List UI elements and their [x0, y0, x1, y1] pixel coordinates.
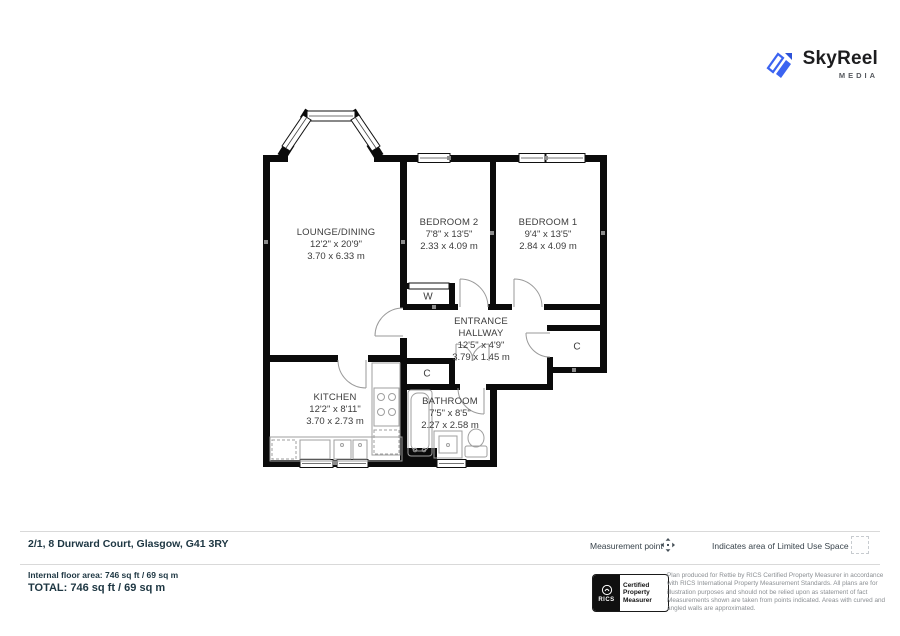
room-name: KITCHEN — [306, 392, 364, 404]
divider-top — [20, 531, 880, 532]
rics-org-label: RICS — [598, 597, 614, 603]
rics-certification-label: Certified Property Measurer — [623, 582, 665, 605]
closet-label-cupboard-left: C — [423, 369, 430, 380]
measurement-point-icon — [661, 538, 675, 552]
room-label-hallway: ENTRANCE HALLWAY 12'5" x 4'9" 3.79 x 1.4… — [442, 316, 520, 364]
room-dims-metric: 3.70 x 2.73 m — [306, 416, 364, 428]
room-dims-metric: 2.84 x 4.09 m — [519, 241, 578, 253]
room-name: BEDROOM 2 — [420, 217, 479, 229]
room-name: ENTRANCE HALLWAY — [442, 316, 520, 340]
room-dims-imperial: 7'5" x 8'5" — [421, 408, 479, 420]
floor-plan-drawing — [0, 0, 900, 530]
floor-plan: LOUNGE/DINING 12'2" x 20'9" 3.70 x 6.33 … — [0, 0, 900, 530]
rics-badge: RICS Certified Property Measurer — [592, 574, 669, 612]
room-dims-imperial: 9'4" x 13'5" — [519, 229, 578, 241]
room-dims-imperial: 7'8" x 13'5" — [420, 229, 479, 241]
rics-emblem: RICS — [593, 575, 620, 611]
room-name: BEDROOM 1 — [519, 217, 578, 229]
room-dims-metric: 3.70 x 6.33 m — [297, 251, 376, 263]
room-dims-imperial: 12'5" x 4'9" — [442, 340, 520, 352]
room-dims-metric: 3.79 x 1.45 m — [442, 352, 520, 364]
room-dims-metric: 2.33 x 4.09 m — [420, 241, 479, 253]
closet-label-wardrobe: W — [423, 292, 432, 303]
floorplan-page: SkyReel MEDIA — [0, 0, 900, 636]
room-label-bedroom1: BEDROOM 1 9'4" x 13'5" 2.84 x 4.09 m — [519, 217, 578, 253]
room-label-lounge: LOUNGE/DINING 12'2" x 20'9" 3.70 x 6.33 … — [297, 227, 376, 263]
divider-bottom — [20, 564, 880, 565]
room-dims-imperial: 12'2" x 8'11" — [306, 404, 364, 416]
property-address: 2/1, 8 Durward Court, Glasgow, G41 3RY — [28, 538, 229, 550]
room-name: LOUNGE/DINING — [297, 227, 376, 239]
internal-floor-area: Internal floor area: 746 sq ft / 69 sq m — [28, 570, 178, 580]
measurement-point-label: Measurement point — [590, 541, 663, 551]
room-dims-metric: 2.27 x 2.58 m — [421, 420, 479, 432]
total-floor-area: TOTAL: 746 sq ft / 69 sq m — [28, 582, 165, 594]
room-label-bathroom: BATHROOM 7'5" x 8'5" 2.27 x 2.58 m — [421, 396, 479, 432]
room-label-bedroom2: BEDROOM 2 7'8" x 13'5" 2.33 x 4.09 m — [420, 217, 479, 253]
room-name: BATHROOM — [421, 396, 479, 408]
rics-lion-icon — [601, 584, 613, 596]
room-dims-imperial: 12'2" x 20'9" — [297, 239, 376, 251]
limited-use-swatch — [851, 536, 869, 554]
room-label-kitchen: KITCHEN 12'2" x 8'11" 3.70 x 2.73 m — [306, 392, 364, 428]
plan-disclaimer: Plan produced for Rettie by RICS Certifi… — [667, 572, 892, 613]
limited-use-label: Indicates area of Limited Use Space — [712, 541, 849, 551]
closet-label-cupboard-right: C — [573, 342, 580, 353]
